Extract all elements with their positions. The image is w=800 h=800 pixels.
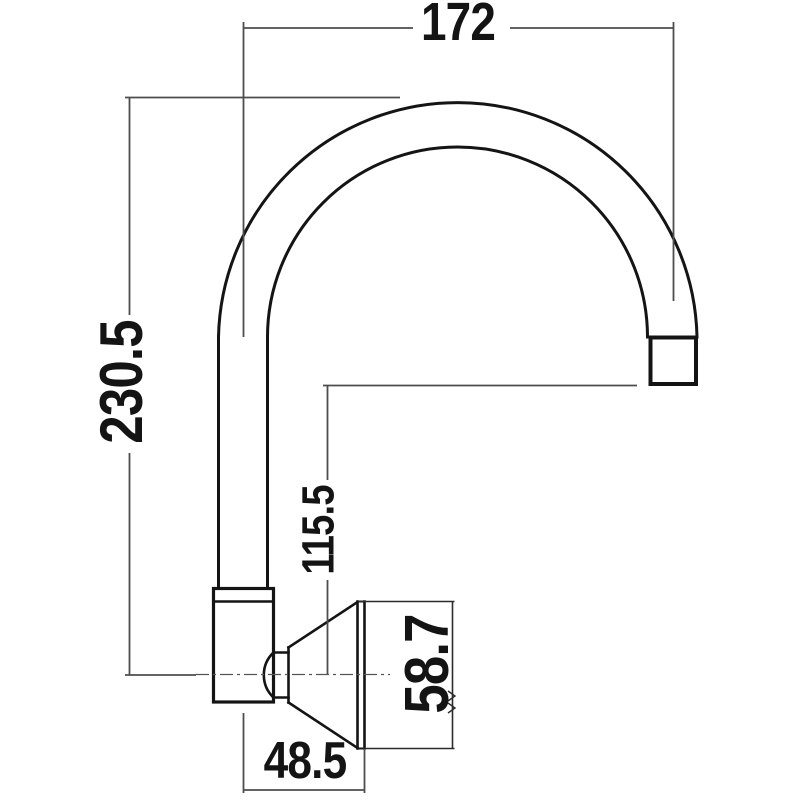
spout-outer-arc: [219, 103, 698, 337]
dim-spout-reach-lines: [244, 22, 674, 337]
dimension-label-flange-diameter: 58.7: [397, 614, 459, 713]
flange-cone-top-edge: [289, 602, 358, 648]
spout-inner-arc: [268, 147, 648, 337]
technical-drawing-canvas: 172 230.5 115.5 58.7 48.5: [0, 0, 800, 800]
dim-outlet-height-lines: [323, 386, 637, 675]
spout-outlet-tip: [651, 338, 697, 385]
dimension-label-outlet-height: 115.5: [296, 485, 341, 574]
dimension-label-wall-projection: 48.5: [264, 735, 347, 787]
dimension-label-overall-height: 230.5: [92, 320, 152, 443]
dimension-label-spout-reach: 172: [421, 0, 495, 49]
